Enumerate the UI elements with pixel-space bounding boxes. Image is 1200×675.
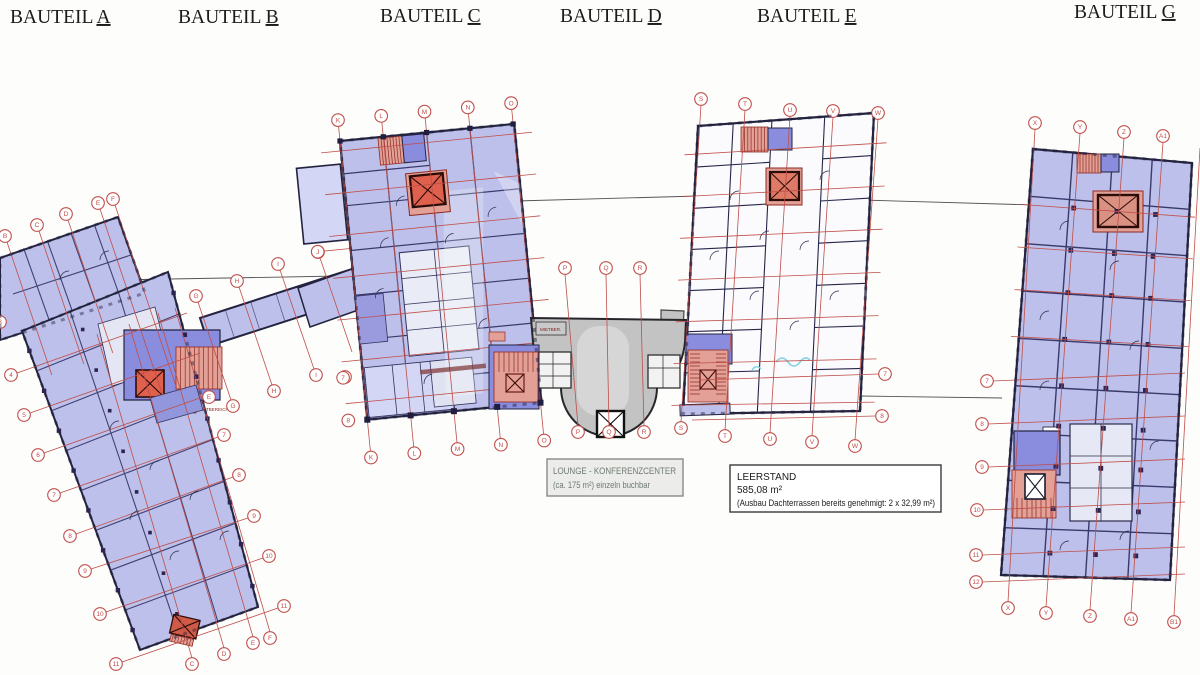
svg-text:MIETBER.: MIETBER. bbox=[540, 327, 561, 332]
svg-text:R: R bbox=[638, 265, 643, 272]
svg-text:7: 7 bbox=[222, 432, 226, 439]
svg-text:L: L bbox=[412, 450, 416, 457]
svg-text:BAUTEIL A: BAUTEIL A bbox=[10, 7, 111, 28]
svg-text:7: 7 bbox=[341, 375, 345, 382]
svg-text:B1: B1 bbox=[1170, 619, 1178, 626]
svg-text:T: T bbox=[723, 433, 727, 440]
svg-text:BAUTEIL D: BAUTEIL D bbox=[560, 6, 662, 27]
svg-text:N: N bbox=[465, 105, 470, 112]
svg-text:F: F bbox=[268, 635, 272, 642]
svg-text:K: K bbox=[336, 117, 341, 124]
svg-text:O: O bbox=[542, 438, 547, 445]
svg-text:N: N bbox=[499, 442, 504, 449]
svg-text:LOUNGE - KONFERENZCENTER: LOUNGE - KONFERENZCENTER bbox=[553, 466, 676, 477]
svg-text:W: W bbox=[875, 110, 882, 117]
svg-text:10: 10 bbox=[973, 507, 981, 514]
svg-text:LEERSTAND: LEERSTAND bbox=[737, 472, 796, 483]
svg-text:9: 9 bbox=[252, 513, 256, 520]
svg-text:P: P bbox=[576, 429, 580, 436]
svg-text:BAUTEIL G: BAUTEIL G bbox=[1074, 2, 1176, 23]
svg-text:7: 7 bbox=[985, 378, 989, 385]
svg-text:D: D bbox=[222, 651, 227, 658]
svg-text:(Ausbau Dachterrassen bereits: (Ausbau Dachterrassen bereits genehmigt:… bbox=[737, 498, 935, 509]
svg-text:S: S bbox=[699, 96, 704, 103]
svg-text:X: X bbox=[1006, 605, 1011, 612]
svg-text:V: V bbox=[810, 439, 815, 446]
svg-text:H: H bbox=[235, 278, 240, 285]
svg-text:8: 8 bbox=[346, 418, 350, 425]
svg-text:V: V bbox=[831, 108, 836, 115]
svg-text:O: O bbox=[509, 100, 514, 107]
svg-text:Q: Q bbox=[606, 429, 611, 436]
svg-text:8: 8 bbox=[68, 533, 72, 540]
svg-text:Z: Z bbox=[1122, 129, 1126, 136]
svg-text:E: E bbox=[251, 640, 256, 647]
svg-text:Y: Y bbox=[1078, 124, 1083, 131]
svg-text:Z: Z bbox=[1088, 613, 1092, 620]
svg-text:9: 9 bbox=[83, 568, 87, 575]
svg-text:W: W bbox=[852, 443, 859, 450]
svg-text:C: C bbox=[190, 661, 195, 668]
svg-text:BAUTEIL C: BAUTEIL C bbox=[380, 6, 481, 27]
svg-text:8: 8 bbox=[237, 472, 241, 479]
svg-text:F: F bbox=[111, 196, 115, 203]
svg-text:4: 4 bbox=[9, 372, 13, 379]
svg-text:B: B bbox=[3, 233, 7, 240]
svg-text:M: M bbox=[455, 446, 460, 453]
svg-text:E: E bbox=[207, 394, 212, 401]
svg-text:E: E bbox=[96, 200, 101, 207]
svg-text:X: X bbox=[1033, 120, 1038, 127]
svg-text:R: R bbox=[642, 429, 647, 436]
svg-text:11: 11 bbox=[281, 603, 288, 610]
svg-text:J: J bbox=[316, 249, 319, 256]
svg-text:6: 6 bbox=[36, 452, 40, 459]
svg-text:P: P bbox=[563, 265, 567, 272]
svg-text:U: U bbox=[768, 436, 773, 443]
svg-text:(ca. 175 m²) einzeln buchbar: (ca. 175 m²) einzeln buchbar bbox=[553, 480, 650, 490]
svg-text:D: D bbox=[64, 211, 69, 218]
svg-text:BAUTEIL E: BAUTEIL E bbox=[757, 6, 856, 27]
svg-text:12: 12 bbox=[972, 579, 980, 586]
svg-text:BAUTEIL B: BAUTEIL B bbox=[178, 7, 279, 28]
svg-text:Y: Y bbox=[1044, 610, 1049, 617]
svg-text:K: K bbox=[369, 455, 374, 462]
svg-text:7: 7 bbox=[52, 492, 56, 499]
svg-text:Q: Q bbox=[603, 265, 608, 272]
svg-text:I: I bbox=[277, 261, 279, 268]
svg-text:A1: A1 bbox=[1159, 133, 1167, 140]
svg-text:585,08 m²: 585,08 m² bbox=[737, 485, 783, 496]
svg-text:11: 11 bbox=[973, 552, 980, 559]
svg-text:11: 11 bbox=[113, 661, 120, 668]
svg-text:8: 8 bbox=[880, 413, 884, 420]
svg-text:7: 7 bbox=[883, 371, 887, 378]
svg-text:I: I bbox=[315, 372, 317, 379]
svg-text:5: 5 bbox=[22, 412, 26, 419]
svg-text:M: M bbox=[422, 109, 427, 116]
svg-text:10: 10 bbox=[265, 553, 273, 560]
svg-text:8: 8 bbox=[980, 421, 984, 428]
svg-text:C: C bbox=[35, 222, 40, 229]
svg-text:A1: A1 bbox=[1127, 616, 1135, 623]
svg-text:G: G bbox=[193, 293, 198, 300]
svg-text:T: T bbox=[743, 101, 747, 108]
svg-text:H: H bbox=[272, 388, 277, 395]
svg-text:G: G bbox=[230, 403, 235, 410]
svg-text:U: U bbox=[788, 107, 793, 114]
svg-text:S: S bbox=[679, 425, 684, 432]
svg-text:L: L bbox=[379, 113, 383, 120]
svg-text:9: 9 bbox=[980, 464, 984, 471]
svg-text:10: 10 bbox=[96, 611, 104, 618]
